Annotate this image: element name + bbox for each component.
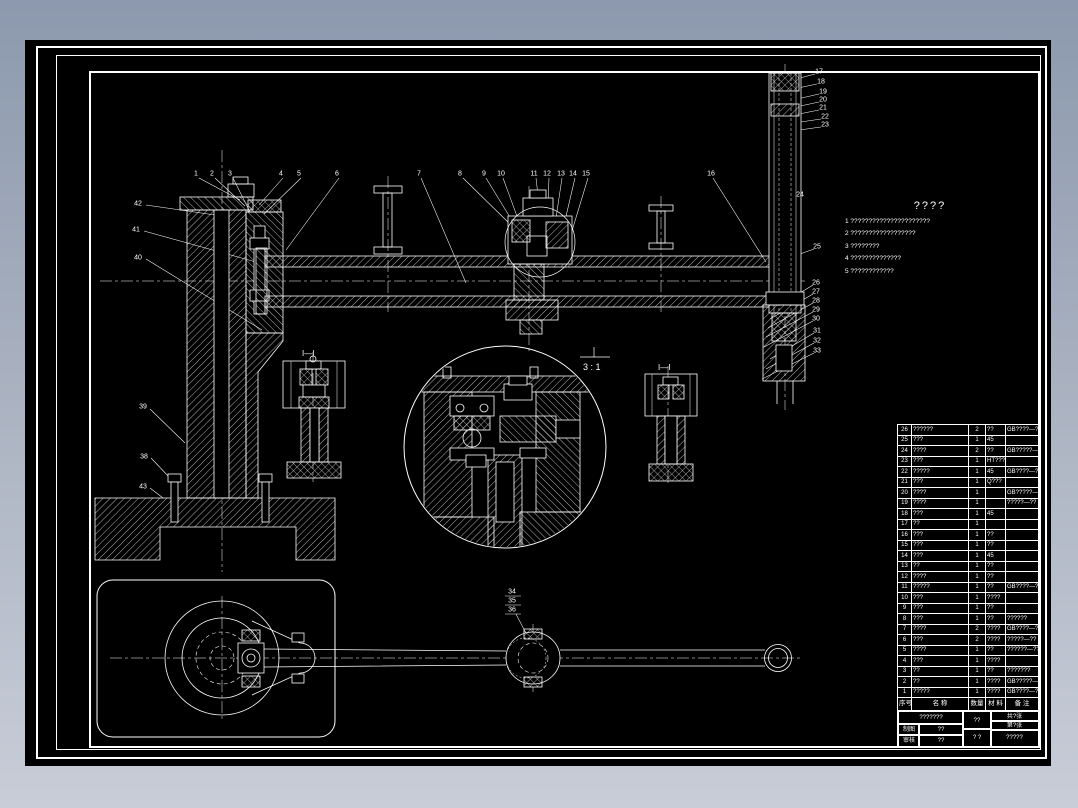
bom-cell: 5 bbox=[898, 645, 912, 656]
bom-row: 20????1GB?????—?? bbox=[898, 488, 1039, 499]
callout-12: 12 bbox=[543, 171, 551, 178]
callout-25: 25 bbox=[813, 244, 821, 251]
bom-cell bbox=[1006, 435, 1039, 446]
bom-cell: 24 bbox=[898, 446, 912, 457]
bom-header-row: 序号名 称数量材 料备 注 bbox=[898, 698, 1039, 711]
bom-cell: ?? bbox=[986, 603, 1006, 614]
bom-cell: ?????? bbox=[912, 425, 969, 436]
bom-cell: ??? bbox=[912, 509, 969, 520]
bom-row: 17??1 bbox=[898, 519, 1039, 530]
callout-10: 10 bbox=[497, 171, 505, 178]
callout-26: 26 bbox=[812, 280, 820, 287]
bom-cell: ?????—?? bbox=[1006, 635, 1039, 646]
callout-20: 20 bbox=[819, 97, 827, 104]
bom-cell: 1 bbox=[969, 477, 986, 488]
bom-cell: 2 bbox=[969, 635, 986, 646]
bom-row: 18???145 bbox=[898, 509, 1039, 520]
bom-row: 1?????1????GB????—?? bbox=[898, 687, 1039, 698]
bom-cell: ?? bbox=[986, 582, 1006, 593]
bom-cell: 1 bbox=[969, 456, 986, 467]
bom-cell: 16 bbox=[898, 530, 912, 541]
bom-cell: 1 bbox=[969, 498, 986, 509]
bom-cell: ????? bbox=[912, 582, 969, 593]
bom-cell bbox=[1006, 561, 1039, 572]
callout-15: 15 bbox=[582, 171, 590, 178]
callout-22: 22 bbox=[821, 114, 829, 121]
bom-cell: 45 bbox=[986, 551, 1006, 562]
bom-cell: ?? bbox=[986, 614, 1006, 625]
callout-28: 28 bbox=[812, 298, 820, 305]
notes-lines: 1 ??????????????????????2 ??????????????… bbox=[845, 218, 1045, 275]
bom-cell: GB?????—?? bbox=[1006, 488, 1039, 499]
detail-circle-view: 3 : 1 bbox=[404, 346, 610, 565]
bom-cell bbox=[1006, 572, 1039, 583]
callout-1: 1 bbox=[194, 171, 198, 178]
bom-cell bbox=[1006, 530, 1039, 541]
bom-cell: 1 bbox=[969, 519, 986, 530]
bom-cell: ?????—?? bbox=[1006, 498, 1039, 509]
bom-cell: ??? bbox=[912, 530, 969, 541]
bom-cell: 1 bbox=[969, 551, 986, 562]
bom-row: 15???1?? bbox=[898, 540, 1039, 551]
bom-cell bbox=[1006, 477, 1039, 488]
bom-cell: ?? bbox=[986, 540, 1006, 551]
callout-14: 14 bbox=[569, 171, 577, 178]
bom-cell bbox=[1006, 456, 1039, 467]
bom-cell: ?? bbox=[912, 519, 969, 530]
bom-cell: ???? bbox=[912, 645, 969, 656]
section-detail-right: I—I bbox=[645, 363, 697, 481]
callout-38: 38 bbox=[140, 454, 148, 461]
bom-row: 22?????145GB????—?? bbox=[898, 467, 1039, 478]
bom-cell: ??? bbox=[912, 540, 969, 551]
bom-cell: ??? bbox=[912, 551, 969, 562]
bom-cell: 1 bbox=[969, 677, 986, 688]
parts-list-table: 26??????2??GB????—??25???14524????2??GB?… bbox=[897, 424, 1039, 711]
bom-cell: ???? bbox=[986, 687, 1006, 698]
callout-17: 17 bbox=[815, 69, 823, 76]
bom-cell: ?? bbox=[986, 572, 1006, 583]
bom-cell: ?? bbox=[986, 425, 1006, 436]
mid-bottom-cell: ? ? bbox=[962, 728, 992, 747]
note-line: 1 ?????????????????????? bbox=[845, 218, 1045, 225]
callout-34: 34 bbox=[508, 589, 516, 596]
callout-39: 39 bbox=[139, 404, 147, 411]
bom-header-cell: 数量 bbox=[969, 698, 986, 711]
bom-cell: 7 bbox=[898, 624, 912, 635]
bom-cell bbox=[1006, 519, 1039, 530]
note-line: 4 ?????????????? bbox=[845, 255, 1045, 262]
callout-23: 23 bbox=[821, 122, 829, 129]
callout-40: 40 bbox=[134, 255, 142, 262]
title-block: ??????? 制图 ?? 审核 ?? ?? ? ? 共?张 第?张 ????? bbox=[897, 710, 1039, 747]
bom-cell: 1 bbox=[898, 687, 912, 698]
bom-cell: ??????? bbox=[1006, 666, 1039, 677]
bom-cell: 15 bbox=[898, 540, 912, 551]
bom-cell: ?? bbox=[986, 645, 1006, 656]
bom-cell: GB????—?? bbox=[1006, 425, 1039, 436]
checker-value: ?? bbox=[918, 734, 964, 747]
callout-13: 13 bbox=[557, 171, 565, 178]
bom-cell: 12 bbox=[898, 572, 912, 583]
bom-cell: 1 bbox=[969, 656, 986, 667]
bom-cell: ????? bbox=[912, 687, 969, 698]
section-label: I—I bbox=[302, 349, 314, 358]
bom-row: 9???1?? bbox=[898, 603, 1039, 614]
bom-cell: ???? bbox=[986, 656, 1006, 667]
bom-cell: ?????? bbox=[1006, 614, 1039, 625]
bom-cell: 45 bbox=[986, 467, 1006, 478]
bom-cell: 1 bbox=[969, 561, 986, 572]
bom-cell: 8 bbox=[898, 614, 912, 625]
bom-cell bbox=[1006, 656, 1039, 667]
bom-row: 12????1?? bbox=[898, 572, 1039, 583]
callout-24: 24 bbox=[796, 192, 804, 199]
bom-cell: 1 bbox=[969, 687, 986, 698]
bom-cell: 10 bbox=[898, 593, 912, 604]
bom-row: 26??????2??GB????—?? bbox=[898, 425, 1039, 436]
bom-cell bbox=[1006, 509, 1039, 520]
callout-35: 35 bbox=[508, 598, 516, 605]
bom-cell: ??????—?? bbox=[1006, 645, 1039, 656]
column-section bbox=[180, 177, 283, 498]
bom-cell bbox=[1006, 603, 1039, 614]
bom-cell: 19 bbox=[898, 498, 912, 509]
callout-4: 4 bbox=[279, 171, 283, 178]
bom-cell: ???? bbox=[912, 498, 969, 509]
callout-36: 36 bbox=[508, 607, 516, 614]
bom-cell: ?? bbox=[912, 677, 969, 688]
bom-header-cell: 备 注 bbox=[1006, 698, 1039, 711]
bom-cell: ?? bbox=[912, 561, 969, 572]
bom-cell: ???? bbox=[986, 624, 1006, 635]
bom-row: 19????1?????—?? bbox=[898, 498, 1039, 509]
bom-cell: 1 bbox=[969, 540, 986, 551]
bom-row: 6???2?????????—?? bbox=[898, 635, 1039, 646]
bom-cell: ??? bbox=[912, 593, 969, 604]
bom-cell: 1 bbox=[969, 488, 986, 499]
bom-cell bbox=[1006, 593, 1039, 604]
bom-cell: 1 bbox=[969, 530, 986, 541]
bom-cell: 23 bbox=[898, 456, 912, 467]
callout-11: 11 bbox=[530, 171, 537, 178]
callout-8: 8 bbox=[458, 171, 462, 178]
note-line: 3 ???????? bbox=[845, 243, 1045, 250]
bom-row: 16???1?? bbox=[898, 530, 1039, 541]
bom-cell: GB????—?? bbox=[1006, 467, 1039, 478]
bom-cell: GB????—?? bbox=[1006, 687, 1039, 698]
callout-31: 31 bbox=[813, 328, 821, 335]
bom-cell bbox=[986, 498, 1006, 509]
bom-cell: 26 bbox=[898, 425, 912, 436]
bom-row: 4???1???? bbox=[898, 656, 1039, 667]
callout-9: 9 bbox=[482, 171, 486, 178]
bom-cell: GB????—?? bbox=[1006, 582, 1039, 593]
callout-6: 6 bbox=[335, 171, 339, 178]
bom-cell: ??? bbox=[912, 614, 969, 625]
callout-27: 27 bbox=[812, 289, 820, 296]
callout-19: 19 bbox=[819, 89, 827, 96]
section-detail-left: I—I bbox=[283, 349, 345, 478]
bom-cell: 1 bbox=[969, 645, 986, 656]
bom-cell: GB?????—?? bbox=[1006, 446, 1039, 457]
doc-number: ????? bbox=[990, 729, 1039, 747]
bom-cell: 22 bbox=[898, 467, 912, 478]
bom-cell: 13 bbox=[898, 561, 912, 572]
technical-notes: ???? 1 ??????????????????????2 ?????????… bbox=[845, 200, 1045, 275]
checker-label: 审核 bbox=[898, 734, 920, 747]
bom-row: 24????2??GB?????—?? bbox=[898, 446, 1039, 457]
cad-drawing-page: { "notes": { "title": "????", "lines": [… bbox=[0, 0, 1078, 808]
bom-cell: 4 bbox=[898, 656, 912, 667]
bom-cell: ?? bbox=[986, 530, 1006, 541]
bom-cell: ??? bbox=[912, 635, 969, 646]
bom-cell: ?? bbox=[986, 446, 1006, 457]
bom-cell: 6 bbox=[898, 635, 912, 646]
callout-41: 41 bbox=[132, 227, 140, 234]
bom-cell: 20 bbox=[898, 488, 912, 499]
bom-cell: 1 bbox=[969, 593, 986, 604]
bom-cell: ???? bbox=[986, 593, 1006, 604]
bom-cell: 14 bbox=[898, 551, 912, 562]
bom-cell: ???? bbox=[912, 572, 969, 583]
bom-cell: 18 bbox=[898, 509, 912, 520]
bom-cell: ???? bbox=[912, 488, 969, 499]
bom-cell bbox=[1006, 540, 1039, 551]
callout-2: 2 bbox=[210, 171, 214, 178]
callout-18: 18 bbox=[817, 79, 825, 86]
bom-cell: ?? bbox=[912, 666, 969, 677]
bom-cell: 2 bbox=[969, 446, 986, 457]
bom-row: 21???1Q??? bbox=[898, 477, 1039, 488]
bom-cell: ????? bbox=[912, 467, 969, 478]
note-line: 2 ?????????????????? bbox=[845, 230, 1045, 237]
callout-30: 30 bbox=[812, 316, 820, 323]
bom-cell: 2 bbox=[898, 677, 912, 688]
bom-cell: 45 bbox=[986, 509, 1006, 520]
bom-cell: ??? bbox=[912, 603, 969, 614]
bom-cell: 11 bbox=[898, 582, 912, 593]
bom-cell: ?? bbox=[986, 561, 1006, 572]
bom-cell: 2 bbox=[969, 425, 986, 436]
bom-cell: 25 bbox=[898, 435, 912, 446]
callout-33: 33 bbox=[813, 348, 821, 355]
bom-row: 25???145 bbox=[898, 435, 1039, 446]
bom-cell: 1 bbox=[969, 614, 986, 625]
bom-row: 13??1?? bbox=[898, 561, 1039, 572]
bom-cell: 1 bbox=[969, 582, 986, 593]
bom-header-cell: 名 称 bbox=[912, 698, 969, 711]
callout-32: 32 bbox=[813, 338, 821, 345]
bom-cell: 3 bbox=[898, 666, 912, 677]
bom-cell bbox=[986, 519, 1006, 530]
callout-16: 16 bbox=[707, 171, 715, 178]
bom-cell bbox=[986, 488, 1006, 499]
bom-cell: ???? bbox=[986, 635, 1006, 646]
bom-cell: HT??? bbox=[986, 456, 1006, 467]
bom-cell: ?? bbox=[986, 666, 1006, 677]
bom-row: 2??1????GB?????—?? bbox=[898, 677, 1039, 688]
bom-cell: 2 bbox=[969, 624, 986, 635]
bom-cell: 45 bbox=[986, 435, 1006, 446]
bom-row: 14???145 bbox=[898, 551, 1039, 562]
bom-row: 5????1????????—?? bbox=[898, 645, 1039, 656]
callout-3: 3 bbox=[228, 171, 232, 178]
bom-cell: ??? bbox=[912, 456, 969, 467]
bom-cell: ???? bbox=[912, 446, 969, 457]
bom-row: 23???1HT??? bbox=[898, 456, 1039, 467]
bom-cell: ??? bbox=[912, 477, 969, 488]
bom-row: 11?????1??GB????—?? bbox=[898, 582, 1039, 593]
bom-cell: ??? bbox=[912, 435, 969, 446]
callout-42: 42 bbox=[134, 201, 142, 208]
callout-5: 5 bbox=[297, 171, 301, 178]
bom-header-cell: 材 料 bbox=[986, 698, 1006, 711]
note-line: 5 ???????????? bbox=[845, 268, 1045, 275]
section-label: I—I bbox=[658, 363, 670, 372]
bom-cell: ??? bbox=[912, 656, 969, 667]
bom-cell: 1 bbox=[969, 509, 986, 520]
callout-21: 21 bbox=[819, 105, 827, 112]
bom-cell: ???? bbox=[912, 624, 969, 635]
bom-cell: ???? bbox=[986, 677, 1006, 688]
bom-row: 10???1???? bbox=[898, 593, 1039, 604]
bom-cell: 1 bbox=[969, 572, 986, 583]
callout-43: 43 bbox=[139, 484, 147, 491]
bom-cell: 1 bbox=[969, 435, 986, 446]
callout-7: 7 bbox=[417, 171, 421, 178]
callout-29: 29 bbox=[812, 307, 820, 314]
bom-cell: 17 bbox=[898, 519, 912, 530]
plan-view bbox=[97, 580, 792, 737]
bom-cell: Q??? bbox=[986, 477, 1006, 488]
bom-cell: 1 bbox=[969, 603, 986, 614]
bom-cell: 9 bbox=[898, 603, 912, 614]
bom-row: 8???1???????? bbox=[898, 614, 1039, 625]
bom-cell bbox=[1006, 551, 1039, 562]
bom-row: 3??1????????? bbox=[898, 666, 1039, 677]
bom-cell: 1 bbox=[969, 666, 986, 677]
bom-cell: GB?????—?? bbox=[1006, 677, 1039, 688]
rod-section bbox=[763, 73, 805, 404]
notes-title: ???? bbox=[885, 200, 975, 212]
detail-scale-label: 3 : 1 bbox=[583, 362, 601, 372]
bom-cell: GB????—?? bbox=[1006, 624, 1039, 635]
bom-cell: 21 bbox=[898, 477, 912, 488]
bom-cell: 1 bbox=[969, 467, 986, 478]
bom-row: 7????2????GB????—?? bbox=[898, 624, 1039, 635]
bom-header-cell: 序号 bbox=[898, 698, 912, 711]
